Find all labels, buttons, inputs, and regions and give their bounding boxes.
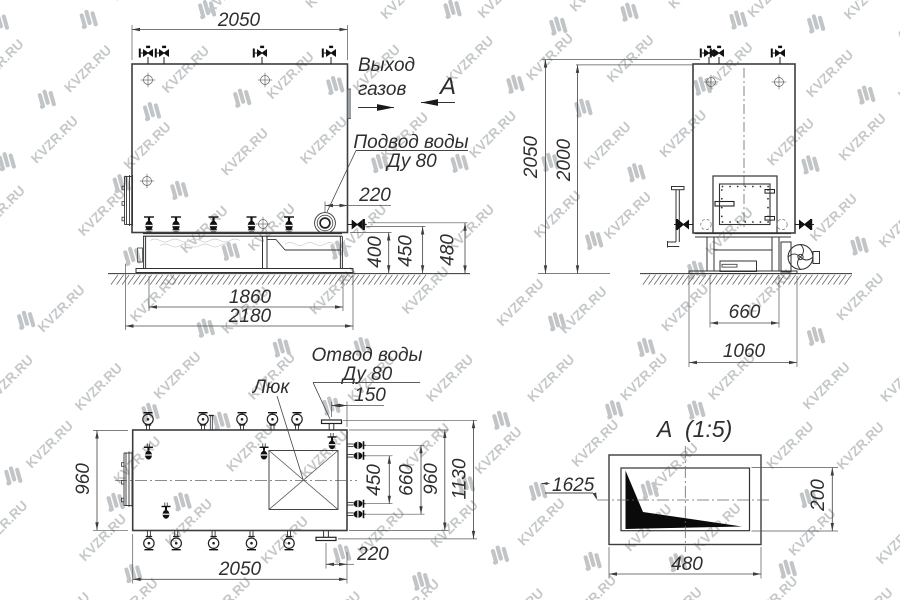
svg-text:2050: 2050 — [521, 135, 542, 179]
svg-text:220: 220 — [356, 544, 389, 565]
svg-text:А: А — [438, 73, 456, 100]
svg-text:Ду 80: Ду 80 — [385, 151, 437, 172]
svg-text:(1:5): (1:5) — [685, 416, 732, 442]
svg-text:Отвод воды: Отвод воды — [311, 345, 422, 366]
svg-text:Ду 80: Ду 80 — [341, 364, 393, 385]
svg-text:1060: 1060 — [723, 341, 766, 362]
svg-text:220: 220 — [358, 185, 391, 206]
svg-text:450: 450 — [364, 464, 385, 496]
svg-text:480: 480 — [671, 554, 703, 575]
svg-text:1130: 1130 — [450, 458, 471, 499]
svg-text:газов: газов — [358, 79, 406, 100]
svg-text:400: 400 — [365, 236, 386, 268]
svg-text:660: 660 — [397, 464, 418, 496]
svg-text:660: 660 — [729, 302, 761, 323]
svg-text:960: 960 — [421, 463, 442, 495]
svg-text:Люк: Люк — [251, 377, 290, 398]
svg-text:480: 480 — [438, 234, 459, 266]
svg-text:Подвод воды: Подвод воды — [353, 132, 468, 153]
svg-text:150: 150 — [354, 385, 386, 406]
svg-text:960: 960 — [73, 463, 94, 495]
svg-text:Выход: Выход — [358, 55, 415, 76]
svg-text:2050: 2050 — [217, 10, 261, 31]
svg-text:А: А — [655, 416, 672, 442]
svg-text:2180: 2180 — [228, 306, 272, 327]
svg-text:1860: 1860 — [229, 287, 272, 308]
svg-text:2000: 2000 — [554, 138, 575, 182]
svg-text:2050: 2050 — [218, 559, 262, 580]
svg-text:450: 450 — [396, 235, 417, 267]
svg-text:200: 200 — [808, 479, 829, 512]
